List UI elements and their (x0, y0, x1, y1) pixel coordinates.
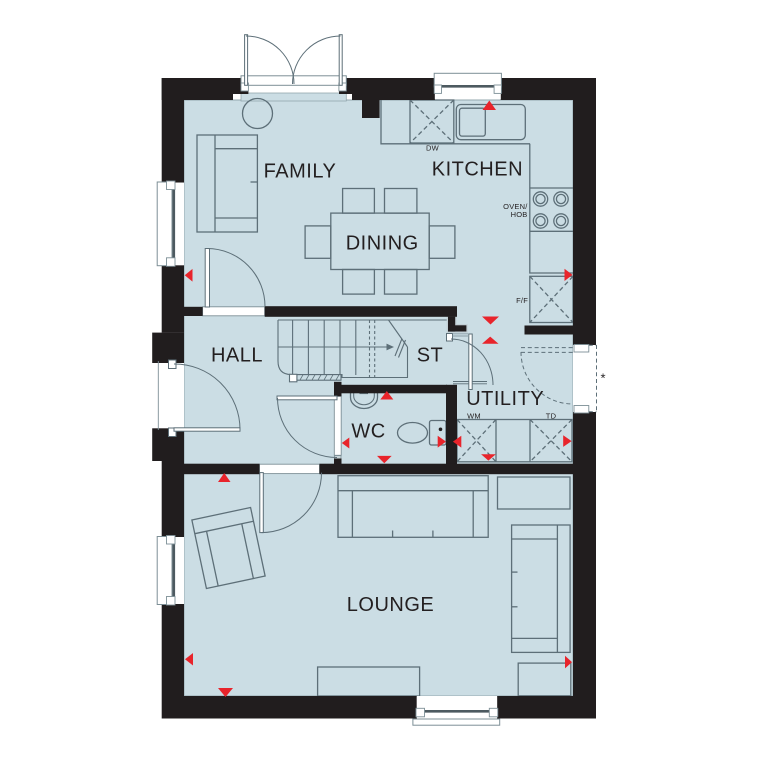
svg-text:LOUNGE: LOUNGE (347, 594, 434, 616)
svg-text:ST: ST (417, 345, 444, 367)
svg-text:WM: WM (467, 412, 481, 421)
svg-text:TD: TD (546, 412, 557, 421)
svg-text:F/F: F/F (516, 296, 528, 305)
svg-text:KITCHEN: KITCHEN (432, 159, 523, 181)
svg-text:DINING: DINING (346, 232, 419, 254)
svg-text:HALL: HALL (211, 345, 263, 367)
svg-text:UTILITY: UTILITY (466, 388, 544, 410)
svg-text:HOB: HOB (511, 210, 528, 219)
svg-text:*: * (601, 371, 606, 386)
svg-text:WC: WC (351, 421, 385, 443)
svg-text:DW: DW (426, 143, 440, 152)
svg-text:FAMILY: FAMILY (264, 161, 337, 183)
